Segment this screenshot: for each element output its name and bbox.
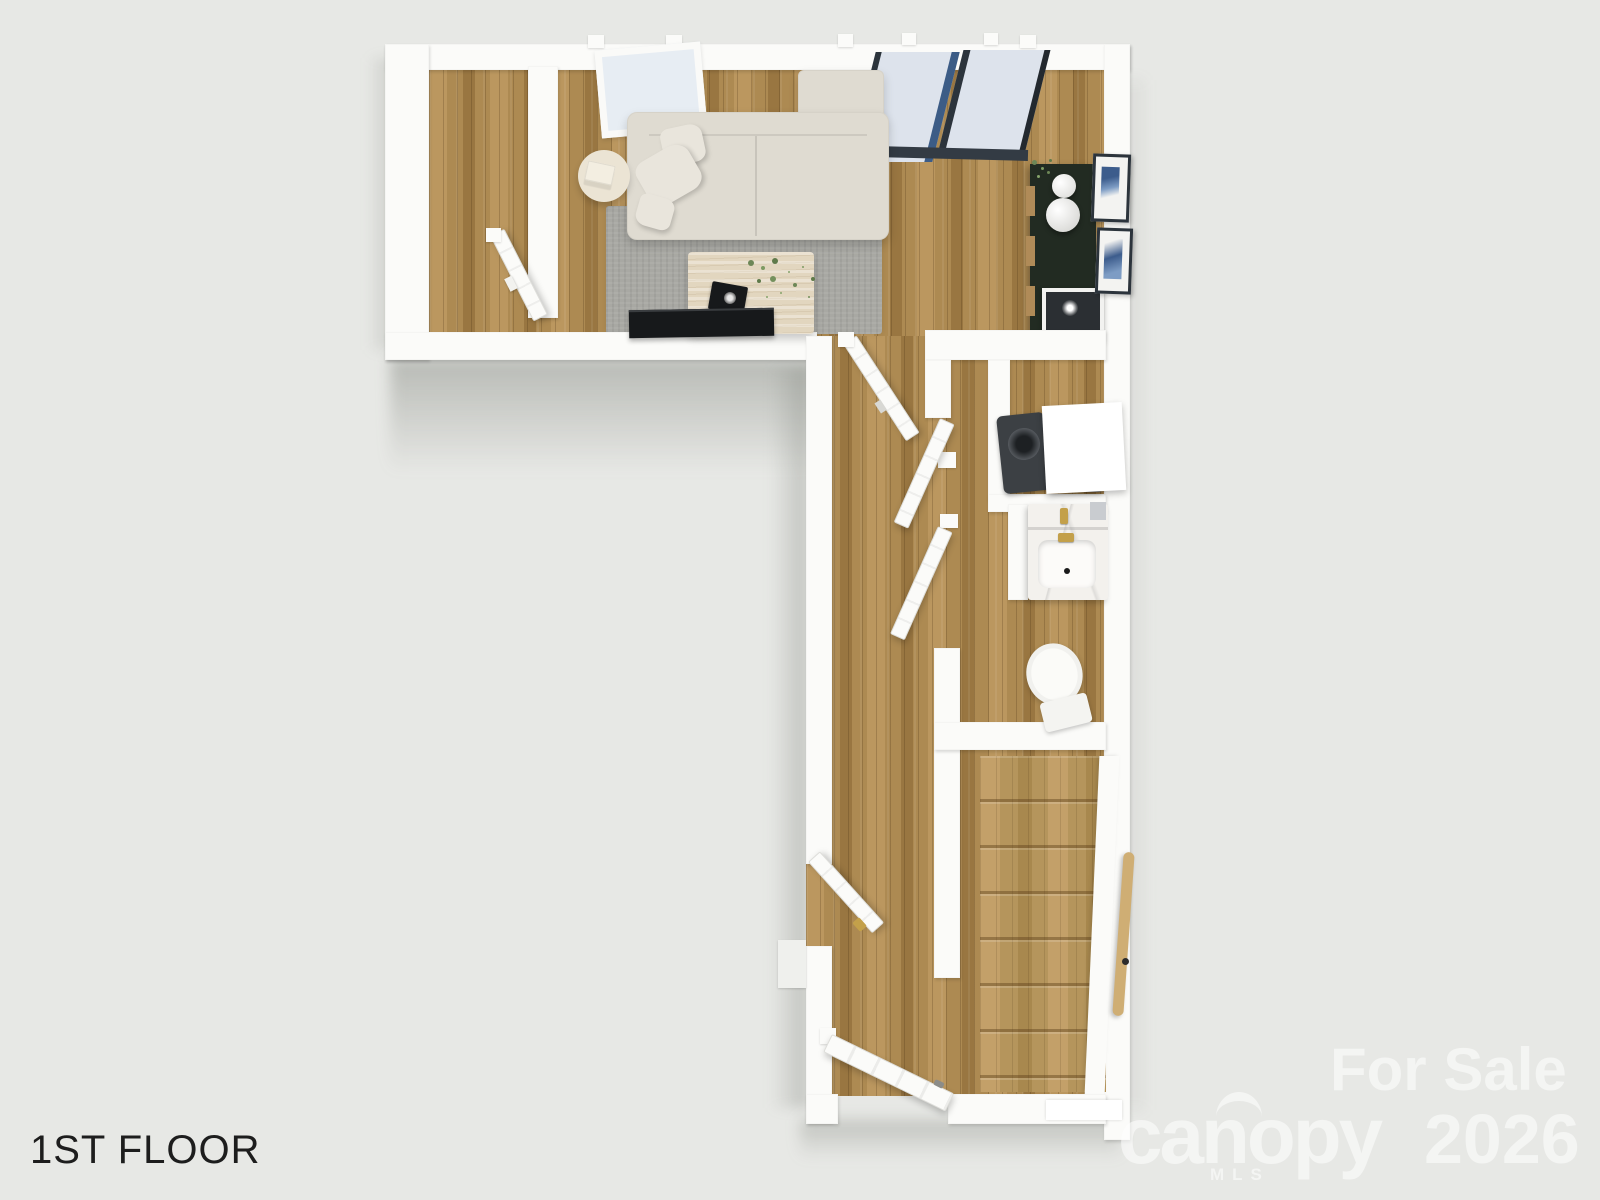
flower-print: [1062, 300, 1078, 316]
door-frame-post: [984, 33, 998, 45]
laundry-counter: [1042, 402, 1126, 494]
window-frame-post: [588, 35, 604, 48]
sink-drain: [1064, 568, 1070, 574]
door-frame-post: [902, 33, 916, 45]
hall-closet-stub-wall: [925, 360, 951, 418]
art-paint-blue: [1100, 167, 1119, 206]
art-paint-blue: [1103, 239, 1122, 280]
door-frame-post: [1020, 35, 1036, 48]
bathroom-alcove-wall: [1008, 504, 1028, 600]
side-door-stoop: [778, 940, 806, 988]
sofa-seat-seam: [755, 136, 757, 236]
vanity-back-ledge: [1028, 527, 1108, 530]
console-shelf-wood-front: [1026, 286, 1035, 316]
plant-foliage: [748, 260, 754, 266]
hall-stairs-wall: [934, 648, 960, 978]
bottom-window-sill: [1046, 1100, 1122, 1120]
shadow-below-bottom-wall: [800, 1120, 1120, 1166]
mirror-edge: [1090, 502, 1106, 520]
shadow-under-top-wing: [390, 358, 818, 493]
shadow-left-of-hall-wing: [766, 368, 808, 1108]
tv-screen: [629, 308, 774, 339]
wall-art-frame: [1095, 227, 1133, 294]
foyer-partition-wall: [528, 66, 558, 318]
door-frame-post: [838, 34, 853, 47]
hall-exterior-wall-left-upper: [806, 336, 832, 864]
sink-basin: [1038, 540, 1096, 588]
console-shelf-wood-front: [1026, 236, 1035, 266]
vase-small: [1052, 174, 1076, 198]
faucet: [1060, 508, 1068, 524]
floor-label: 1ST FLOOR: [30, 1128, 261, 1173]
watermark-year: 2026: [1424, 1104, 1580, 1174]
handrail-bracket: [1122, 958, 1129, 965]
wall-art-frame: [1091, 153, 1131, 222]
door-jamb: [838, 332, 854, 347]
vase-large: [1046, 198, 1080, 232]
faucet-handle: [1058, 533, 1074, 542]
door-jamb: [486, 228, 501, 242]
door-jamb: [940, 514, 958, 528]
living-room-south-wall: [385, 332, 817, 360]
exterior-wall-left: [385, 44, 429, 360]
watermark-mls: MLS: [1210, 1166, 1270, 1183]
console-shelf-wood-front: [1026, 186, 1035, 216]
exterior-wall-bottom-left-seg: [806, 1094, 838, 1124]
console-plant-sprigs: [1032, 160, 1037, 165]
floor-plan-render: 1ST FLOOR For Sale canopy 2026 MLS: [0, 0, 1600, 1200]
laundry-north-wall: [925, 330, 1106, 360]
